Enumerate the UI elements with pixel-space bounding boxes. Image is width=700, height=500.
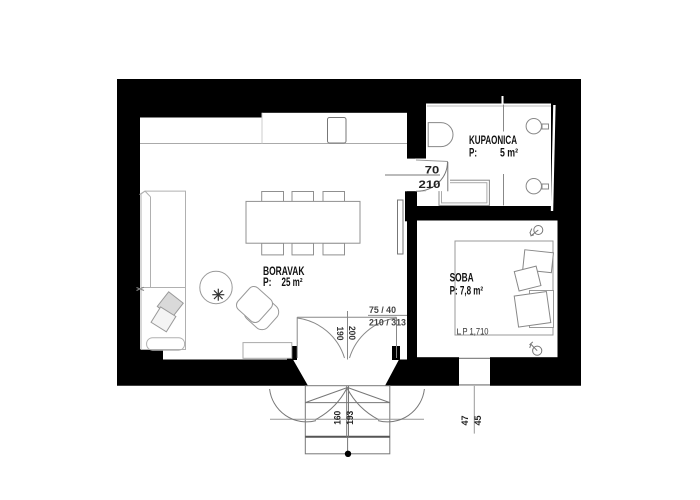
svg-text:P: 7,8 m²: P: 7,8 m² (450, 286, 484, 298)
svg-text:5 m²: 5 m² (500, 148, 518, 160)
svg-text:210 / 313: 210 / 313 (369, 318, 406, 329)
svg-text:P 1,710: P 1,710 (463, 327, 489, 338)
svg-text:75 / 40: 75 / 40 (369, 305, 396, 316)
svg-text:210: 210 (419, 179, 441, 191)
svg-text:P:: P: (263, 277, 272, 289)
svg-text:P:: P: (469, 148, 477, 160)
svg-text:25 m²: 25 m² (282, 277, 303, 289)
svg-text:70: 70 (425, 165, 440, 177)
svg-text:193: 193 (345, 411, 355, 425)
svg-text:200: 200 (347, 326, 357, 340)
svg-text:KUPAONICA: KUPAONICA (469, 135, 517, 147)
svg-text:SOBA: SOBA (450, 273, 474, 285)
svg-text:190: 190 (335, 327, 345, 341)
svg-text:45: 45 (473, 416, 483, 426)
svg-text:160: 160 (333, 411, 343, 425)
svg-text:47: 47 (460, 416, 470, 426)
